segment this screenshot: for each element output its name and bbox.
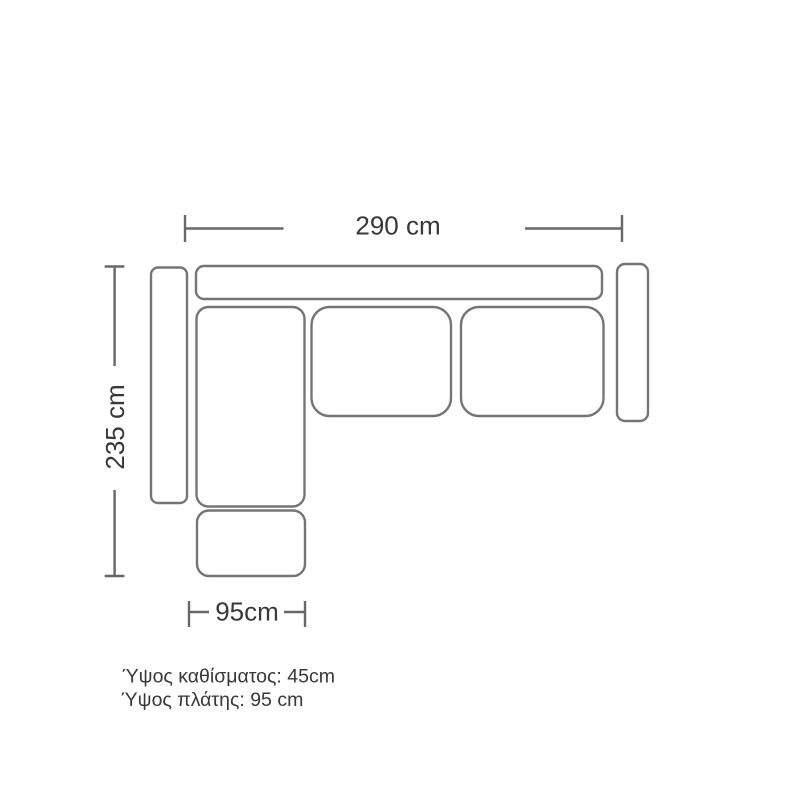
svg-text:95cm: 95cm	[215, 597, 279, 627]
svg-text:Ύψος καθίσματος: 45cm: Ύψος καθίσματος: 45cm	[122, 666, 335, 688]
svg-text:Ύψος πλάτης: 95 cm: Ύψος πλάτης: 95 cm	[121, 689, 303, 711]
svg-text:290 cm: 290 cm	[355, 211, 440, 241]
svg-text:235 cm: 235 cm	[100, 384, 130, 469]
